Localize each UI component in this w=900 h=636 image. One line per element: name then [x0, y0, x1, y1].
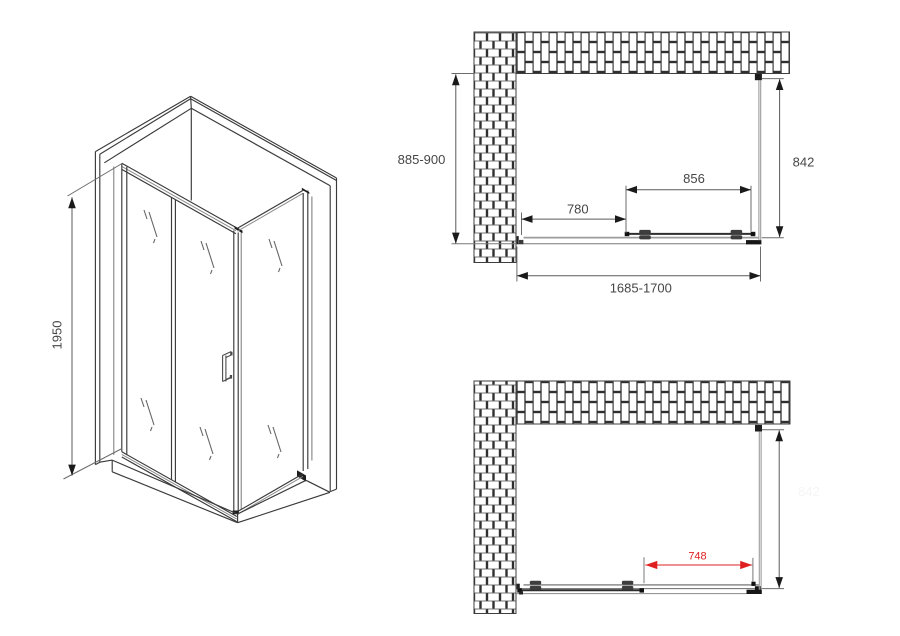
- svg-text:1950: 1950: [50, 321, 65, 350]
- svg-text:748: 748: [688, 550, 706, 562]
- svg-text:842: 842: [798, 484, 820, 499]
- svg-text:842: 842: [793, 155, 815, 170]
- svg-text:885-900: 885-900: [398, 152, 446, 167]
- svg-text:856: 856: [683, 171, 705, 186]
- svg-text:780: 780: [567, 202, 589, 217]
- svg-text:1685-1700: 1685-1700: [610, 281, 672, 296]
